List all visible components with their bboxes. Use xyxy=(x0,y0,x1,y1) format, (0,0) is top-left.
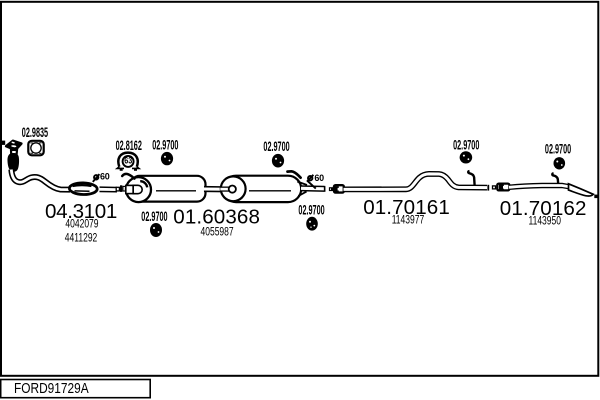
svg-text:02.9700: 02.9700 xyxy=(545,142,571,157)
svg-text:FORD91729A: FORD91729A xyxy=(14,380,89,396)
svg-text:1143950: 1143950 xyxy=(529,215,562,228)
svg-text:01.60368: 01.60368 xyxy=(173,206,260,229)
svg-text:1143977: 1143977 xyxy=(392,215,425,228)
svg-text:4042079: 4042079 xyxy=(65,219,98,232)
svg-text:63: 63 xyxy=(124,156,132,166)
svg-text:4411292: 4411292 xyxy=(65,233,98,246)
svg-text:02.9700: 02.9700 xyxy=(453,138,479,153)
svg-text:02.9700: 02.9700 xyxy=(298,203,324,218)
svg-text:60: 60 xyxy=(314,173,324,183)
svg-text:02.9700: 02.9700 xyxy=(141,210,167,225)
svg-text:4055987: 4055987 xyxy=(201,226,234,239)
svg-text:02.9700: 02.9700 xyxy=(263,140,289,155)
svg-text:60: 60 xyxy=(100,172,110,182)
svg-text:02.9835: 02.9835 xyxy=(22,126,48,141)
svg-text:02.9700: 02.9700 xyxy=(152,138,178,153)
